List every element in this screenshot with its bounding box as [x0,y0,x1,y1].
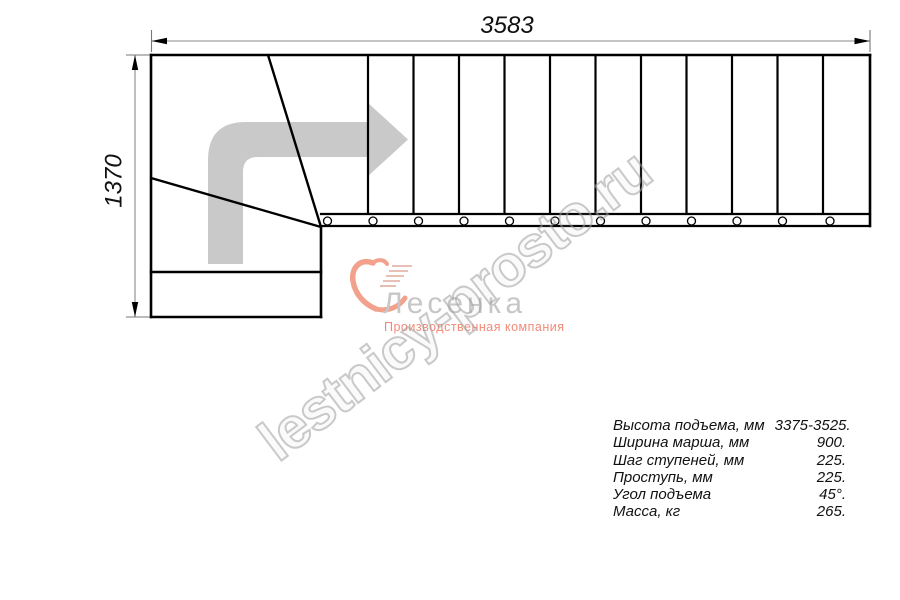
spec-value: 225. [817,452,846,469]
spec-label: Угол подъема [613,486,721,503]
spec-row-width: Ширина марша, мм 900. [613,434,846,451]
logo-company-name: Лесенка [383,287,526,321]
logo-tagline: Производственная компания [384,320,565,334]
spec-row-angle: Угол подъема 45°. [613,486,846,503]
top-dimension-value: 3583 [447,12,567,40]
spec-value: 3375-3525. [775,417,851,434]
spec-row-height: Высота подъема, мм 3375-3525. [613,417,846,434]
spec-label: Ширина марша, мм [613,434,759,451]
spec-row-step: Шаг ступеней, мм 225. [613,452,846,469]
spec-label: Масса, кг [613,503,690,520]
left-dimension-value: 1370 [84,150,146,212]
spec-value: 265. [817,503,846,520]
staircase-drawing-page: 3583 1370 Лесенка Производственная компа… [0,0,900,600]
spec-value: 900. [817,434,846,451]
stringer-lines [321,214,870,226]
spec-table: Высота подъема, мм 3375-3525. Ширина мар… [613,417,846,521]
spec-label: Шаг ступеней, мм [613,452,754,469]
spec-row-tread: Проступь, мм 225. [613,469,846,486]
baluster-circles [324,217,835,225]
spec-row-mass: Масса, кг 265. [613,503,846,520]
plan-outline [151,55,870,317]
spec-value: 45°. [819,486,846,503]
spec-label: Высота подъема, мм [613,417,775,434]
tread-lines [368,55,823,214]
spec-value: 225. [817,469,846,486]
spec-label: Проступь, мм [613,469,723,486]
